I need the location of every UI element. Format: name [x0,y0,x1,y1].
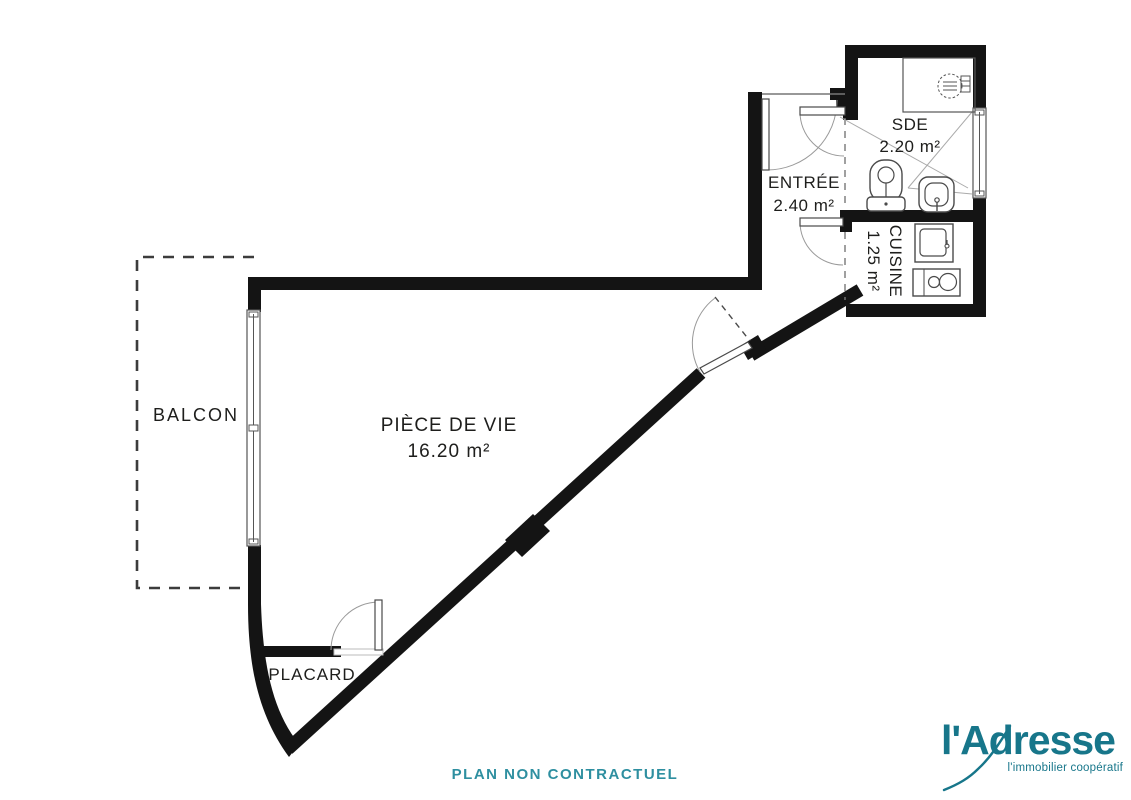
sde-name: SDE [879,114,940,136]
door-kitchen [800,218,845,300]
room-label-balcon: BALCON [153,405,239,426]
window-balcony [247,310,260,546]
room-label-cuisine: CUISINE 1.25 m² [862,225,906,297]
floor-plan: BALCON PIÈCE DE VIE 16.20 m² ENTRÉE 2.40… [0,0,1131,800]
door-entrance [762,94,845,170]
floor-plan-drawing [0,0,1131,800]
piece-de-vie-area: 16.20 m² [381,439,518,465]
cooktop-icon [913,269,960,296]
plan-disclaimer: PLAN NON CONTRACTUEL [452,766,679,783]
piece-de-vie-name: PIÈCE DE VIE [381,413,518,439]
sde-area: 2.20 m² [879,136,940,158]
room-label-piece-de-vie: PIÈCE DE VIE 16.20 m² [381,413,518,465]
room-label-entree: ENTRÉE 2.40 m² [768,171,840,217]
room-label-sde: SDE 2.20 m² [879,114,940,158]
diagonal-walls [288,290,860,749]
agency-logo: l'Adresse l'immobilier coopératif [933,718,1123,774]
cuisine-area: 1.25 m² [862,225,884,297]
cuisine-name: CUISINE [884,225,906,297]
logo-tagline: l'immobilier coopératif [933,762,1123,774]
washbasin-icon [919,177,954,212]
balcon-name: BALCON [153,405,239,425]
toilet-icon [867,160,905,211]
entree-area: 2.40 m² [768,194,840,217]
logo-text: l'Adresse [933,718,1123,762]
kitchen-sink-icon [915,224,953,262]
entree-name: ENTRÉE [768,171,840,194]
door-living-room [692,297,752,374]
placard-name: PLACARD [268,665,355,684]
room-label-placard: PLACARD [268,665,355,685]
